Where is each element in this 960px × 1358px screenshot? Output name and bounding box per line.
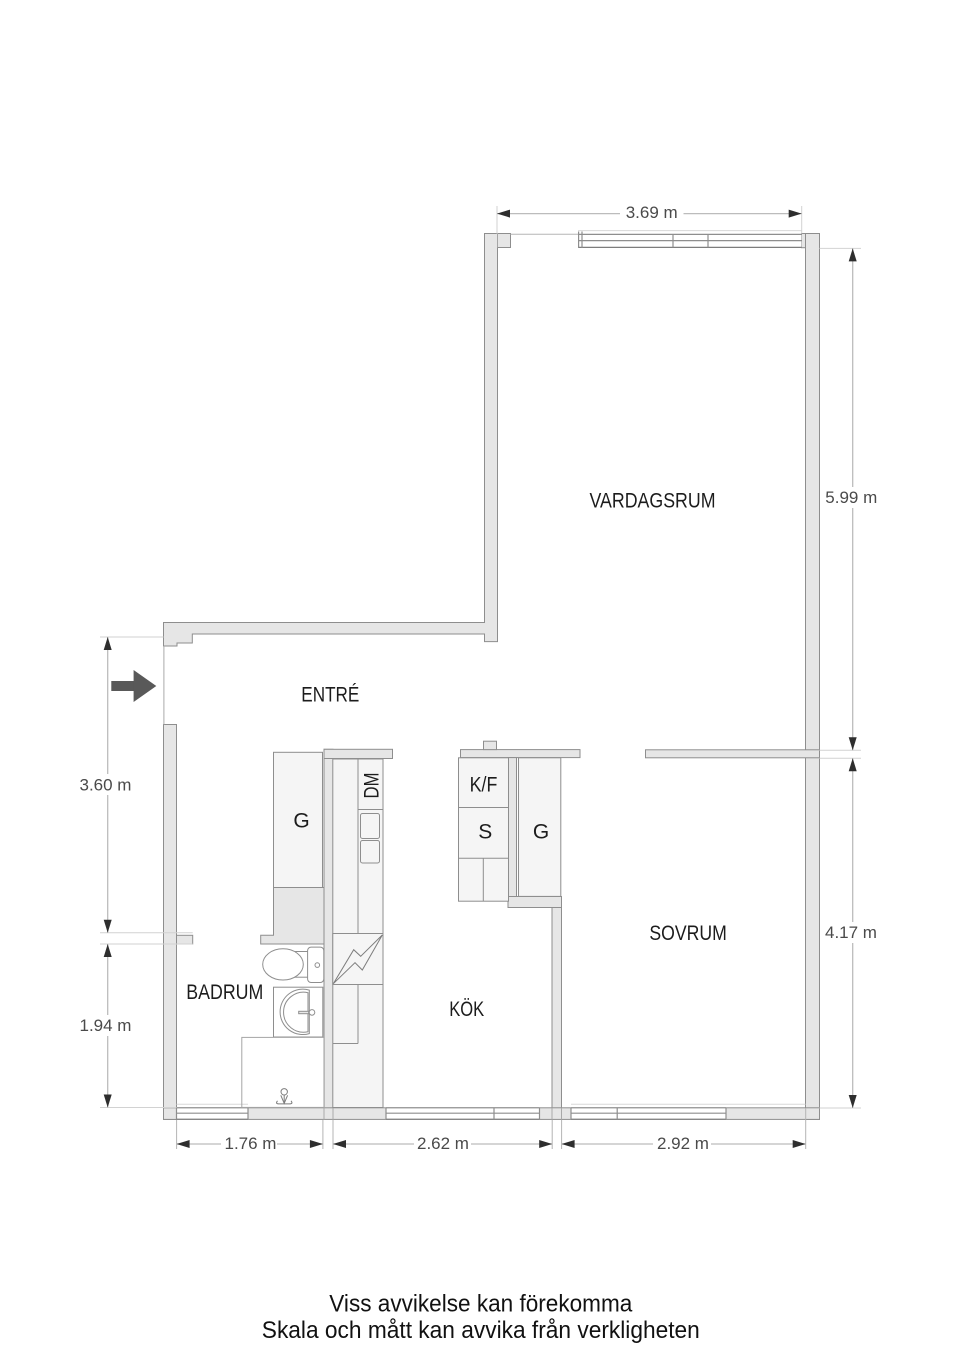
- svg-text:KÖK: KÖK: [449, 998, 484, 1021]
- svg-text:ENTRÉ: ENTRÉ: [301, 684, 359, 707]
- svg-text:Skala och mått kan avvika från: Skala och mått kan avvika från verklighe…: [262, 1317, 700, 1344]
- svg-text:SOVRUM: SOVRUM: [649, 922, 727, 945]
- svg-text:2.62 m: 2.62 m: [417, 1134, 469, 1153]
- svg-text:3.69 m: 3.69 m: [626, 203, 678, 222]
- svg-text:Viss avvikelse kan förekomma: Viss avvikelse kan förekomma: [329, 1290, 633, 1317]
- svg-text:VARDAGSRUM: VARDAGSRUM: [590, 489, 716, 512]
- svg-text:3.60 m: 3.60 m: [80, 775, 132, 794]
- svg-text:2.92 m: 2.92 m: [657, 1134, 709, 1153]
- svg-text:K/F: K/F: [470, 774, 498, 797]
- svg-text:BADRUM: BADRUM: [186, 981, 263, 1004]
- svg-text:5.99 m: 5.99 m: [825, 488, 877, 507]
- svg-text:1.94 m: 1.94 m: [80, 1016, 132, 1035]
- svg-text:DM: DM: [361, 773, 384, 799]
- svg-text:S: S: [478, 820, 492, 843]
- svg-text:G: G: [293, 809, 309, 832]
- svg-text:4.17 m: 4.17 m: [825, 923, 877, 942]
- svg-text:G: G: [533, 820, 549, 843]
- svg-text:1.76 m: 1.76 m: [225, 1134, 277, 1153]
